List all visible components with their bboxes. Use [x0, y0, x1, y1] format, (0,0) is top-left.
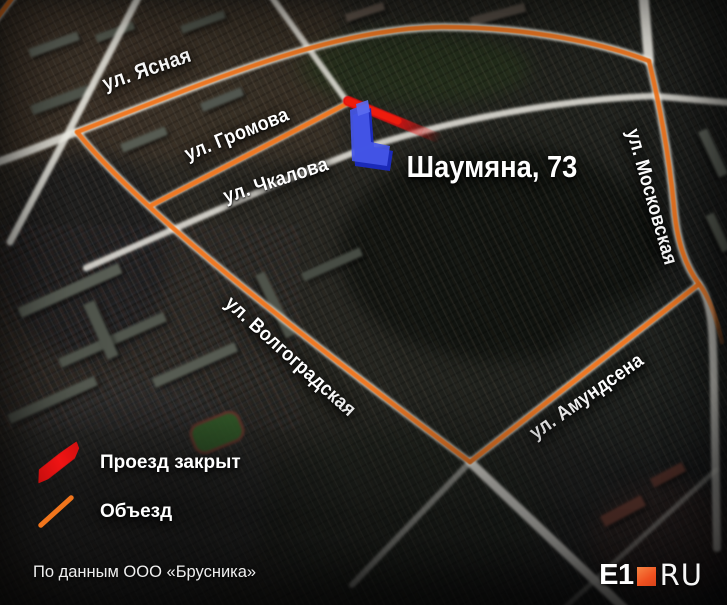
logo-e1-text: E1	[599, 559, 633, 592]
source-note: По данным ООО «Брусника»	[33, 563, 256, 582]
logo-ru-text: RU	[660, 558, 703, 592]
map-infographic: ул. Ясная ул. Громова ул. Чкалова ул. Во…	[0, 0, 727, 605]
legend-label-detour: Объезд	[100, 501, 172, 523]
legend-label-closed: Проезд закрыт	[100, 452, 241, 474]
logo-orange-square-icon	[637, 567, 656, 586]
e1ru-logo: E1 RU	[599, 558, 703, 592]
